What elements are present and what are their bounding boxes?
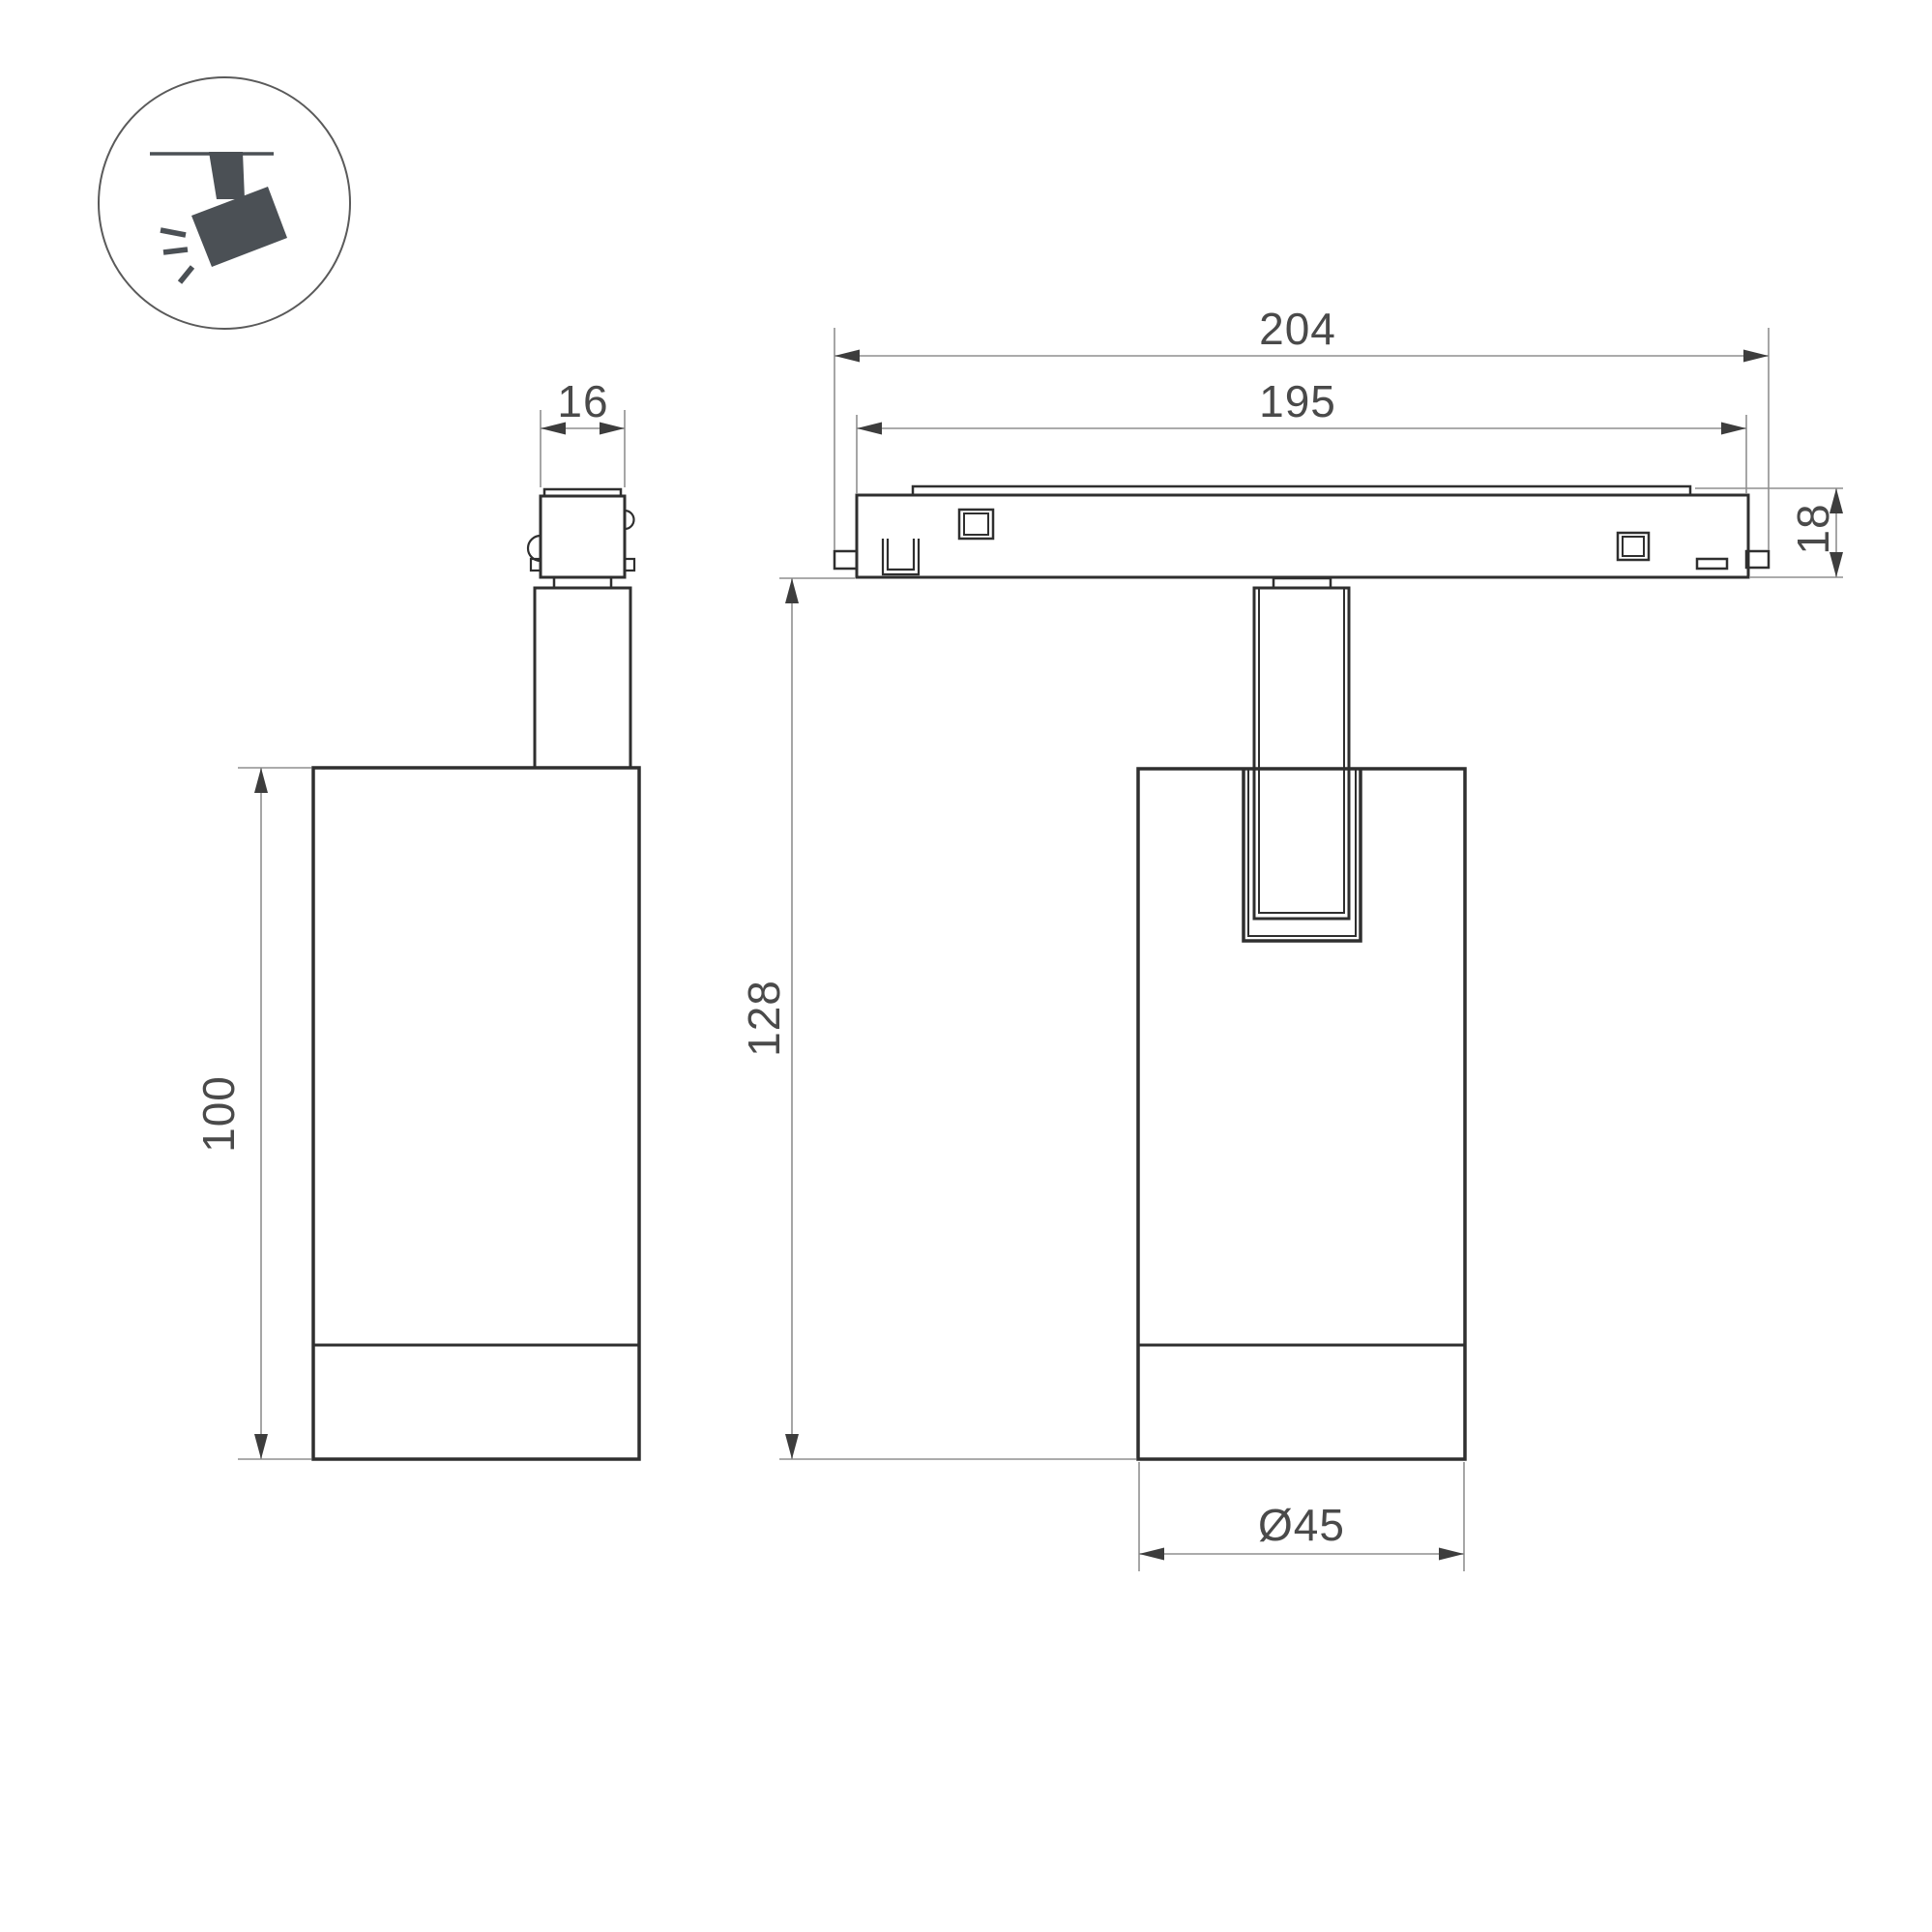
icon-circle bbox=[99, 77, 350, 329]
drawing-canvas: 16 100 bbox=[0, 0, 1932, 1932]
technical-drawing-svg: 16 100 bbox=[0, 0, 1932, 1932]
track-spotlight-icon bbox=[99, 77, 350, 329]
dim-label-track-overall: 204 bbox=[1259, 304, 1336, 354]
dim-label-body-height: 100 bbox=[193, 1075, 244, 1153]
dim-label-connector-width: 16 bbox=[557, 376, 608, 426]
dim-label-track-height: 18 bbox=[1788, 503, 1838, 554]
dim-label-body-diameter: Ø45 bbox=[1258, 1500, 1345, 1550]
dim-label-track-body: 195 bbox=[1259, 376, 1336, 426]
light-ray-icon bbox=[163, 249, 188, 252]
dim-label-overall-height: 128 bbox=[739, 980, 789, 1057]
